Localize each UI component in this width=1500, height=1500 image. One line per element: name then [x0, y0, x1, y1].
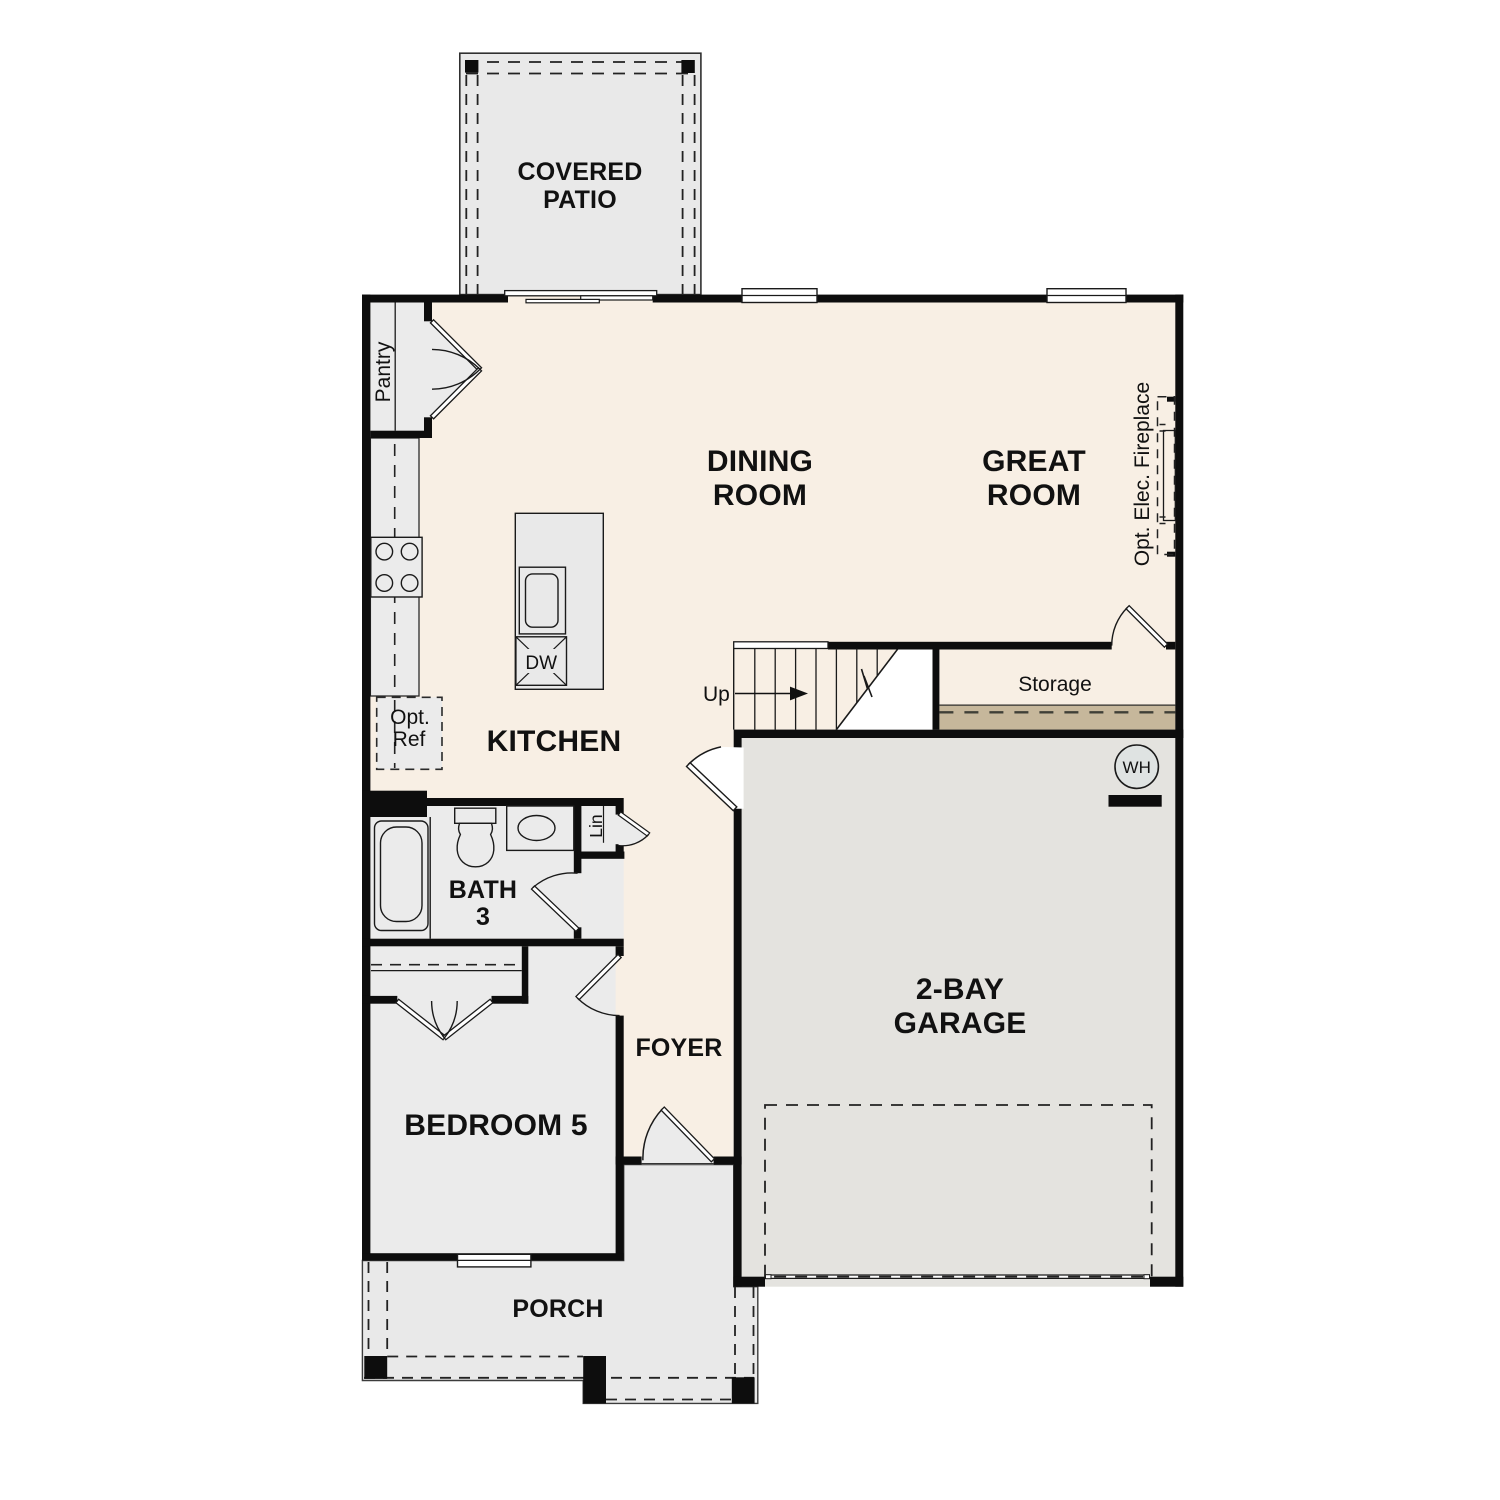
svg-text:3: 3	[476, 903, 490, 931]
svg-text:GARAGE: GARAGE	[894, 1007, 1027, 1040]
svg-text:COVERED: COVERED	[517, 158, 642, 186]
svg-text:Pantry: Pantry	[372, 341, 395, 402]
svg-text:Storage: Storage	[1018, 673, 1092, 696]
svg-text:Opt. Elec. Fireplace: Opt. Elec. Fireplace	[1131, 382, 1154, 566]
svg-text:BEDROOM 5: BEDROOM 5	[404, 1109, 588, 1142]
svg-text:Opt.: Opt.	[390, 706, 430, 729]
svg-text:PATIO: PATIO	[543, 186, 617, 214]
svg-text:WH: WH	[1123, 758, 1151, 777]
svg-text:KITCHEN: KITCHEN	[487, 725, 622, 758]
svg-text:Lin: Lin	[586, 814, 606, 837]
svg-text:DW: DW	[525, 653, 557, 674]
svg-text:FOYER: FOYER	[635, 1034, 722, 1062]
svg-text:PORCH: PORCH	[512, 1295, 603, 1323]
svg-text:Up: Up	[703, 683, 730, 706]
svg-text:GREAT: GREAT	[982, 445, 1086, 478]
svg-text:BATH: BATH	[449, 876, 517, 904]
svg-text:2-BAY: 2-BAY	[916, 973, 1004, 1006]
svg-text:DINING: DINING	[707, 445, 813, 478]
svg-text:ROOM: ROOM	[713, 479, 807, 512]
svg-text:Ref: Ref	[393, 728, 426, 751]
svg-text:ROOM: ROOM	[987, 479, 1081, 512]
